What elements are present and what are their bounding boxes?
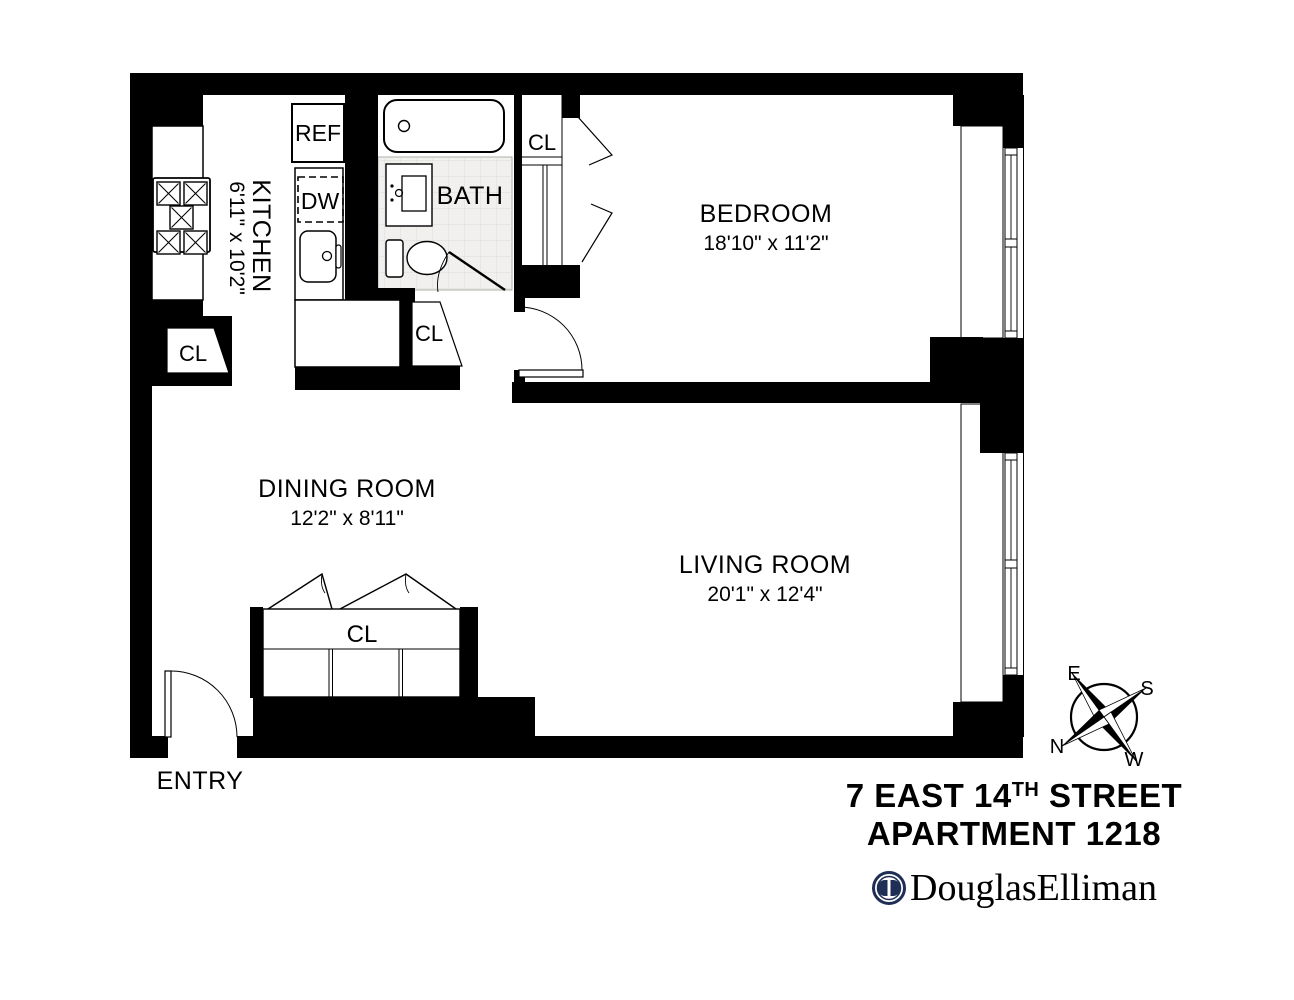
dining-room-dims: 12'2" x 8'11" [290,507,404,530]
wall-bedroom-living-step [930,337,983,403]
wall-bedroom-living [512,382,930,403]
faucet-handle-icon [390,198,393,201]
wall-bedroom-door-jamb-top [514,298,525,312]
floor-plan-canvas: REF DW CL CL CL CL [0,0,1294,1000]
hall-closet-label: CL [415,321,443,346]
wall-top [130,73,1023,95]
wall-bed-closet-jamb-top [562,93,580,118]
left-closet-label: CL [179,341,207,366]
compass-rose: E S N W [1050,663,1154,771]
bifold-door-icon [268,574,332,609]
wall-bath-east [514,93,522,265]
kitchen-label: KITCHEN [247,179,275,292]
footer: 7 EAST 14TH STREET APARTMENT 1218 Dougla… [846,777,1182,909]
brand-logo [874,873,905,904]
wall-kitchen-south [295,367,400,390]
entry-door-swing [171,671,237,737]
bedroom-dims: 18'10" x 11'2" [703,232,828,255]
kitchen-sink [300,231,336,282]
bifold-door-icon [582,204,612,262]
stove-burner-icon [157,182,180,205]
wall-closet-band [253,697,535,738]
compass-south-label: S [1140,678,1153,700]
dining-closet-label: CL [347,621,378,648]
wall-kitchen-bath [345,95,378,302]
compass-north-label: N [1050,736,1064,758]
bifold-door-icon [578,117,612,165]
wall-left [130,73,152,758]
address-post: STREET [1039,777,1182,814]
bath-sink [402,176,426,211]
kitchen-counter-south [295,300,400,367]
kitchen-dims: 6'11" x 10'2" [225,181,248,295]
brand-name: DouglasElliman [910,867,1157,909]
hall-closet: CL [412,302,462,366]
bedroom-closet-label: CL [528,130,556,155]
stove-burner-icon [157,231,180,254]
address-line: 7 EAST 14TH STREET [846,777,1182,814]
compass-west-label: W [1125,749,1144,771]
wall-between-windows [980,338,1023,453]
bedroom-closet: CL [522,95,612,265]
stove-burner-icon [184,182,207,205]
sink-faucet-icon [336,245,341,268]
wall-bottom [237,736,1023,758]
toilet-tank [386,240,403,277]
wall-bottom-left [130,736,168,758]
dining-room-label: DINING ROOM [258,475,436,503]
refrigerator-label: REF [295,120,341,146]
entry-door-leaf [165,671,171,737]
apartment-line: APARTMENT 1218 [867,815,1161,852]
living-room-dims: 20'1" x 12'4" [707,583,822,606]
living-window [1005,453,1017,675]
wall-bed-closet-jamb-bottom [514,265,580,298]
bedroom-door-leaf [519,370,583,377]
wall-hall-closet-bottom [398,366,460,390]
bedroom-window [1005,148,1017,338]
floor-plan-page: REF DW CL CL CL CL [0,0,1294,1000]
dining-closet: CL [263,574,460,697]
bath-label: BATH [437,182,504,210]
entry-label: ENTRY [157,767,244,795]
bedroom-window-ledge [961,126,1003,338]
address-pre: 7 EAST 14 [846,777,1012,814]
bedroom-label: BEDROOM [700,200,833,228]
compass-east-label: E [1067,663,1080,685]
living-room-label: LIVING ROOM [679,551,851,579]
stove-burner-icon [170,206,193,229]
faucet-handle-icon [390,184,393,187]
bedroom-door-swing [519,307,582,370]
wall-dining-closet-jamb-right [460,607,478,698]
wall-bottom-right-step [953,702,1023,758]
wall-dining-closet-jamb-left [250,607,263,698]
bifold-door-icon [340,574,456,609]
tub-drain-icon [399,121,410,132]
dishwasher-label: DW [301,188,340,214]
toilet-bowl [407,242,447,275]
stove-burner-icon [184,231,207,254]
address-superscript: TH [1012,779,1040,801]
wall-right-top [1003,73,1023,148]
